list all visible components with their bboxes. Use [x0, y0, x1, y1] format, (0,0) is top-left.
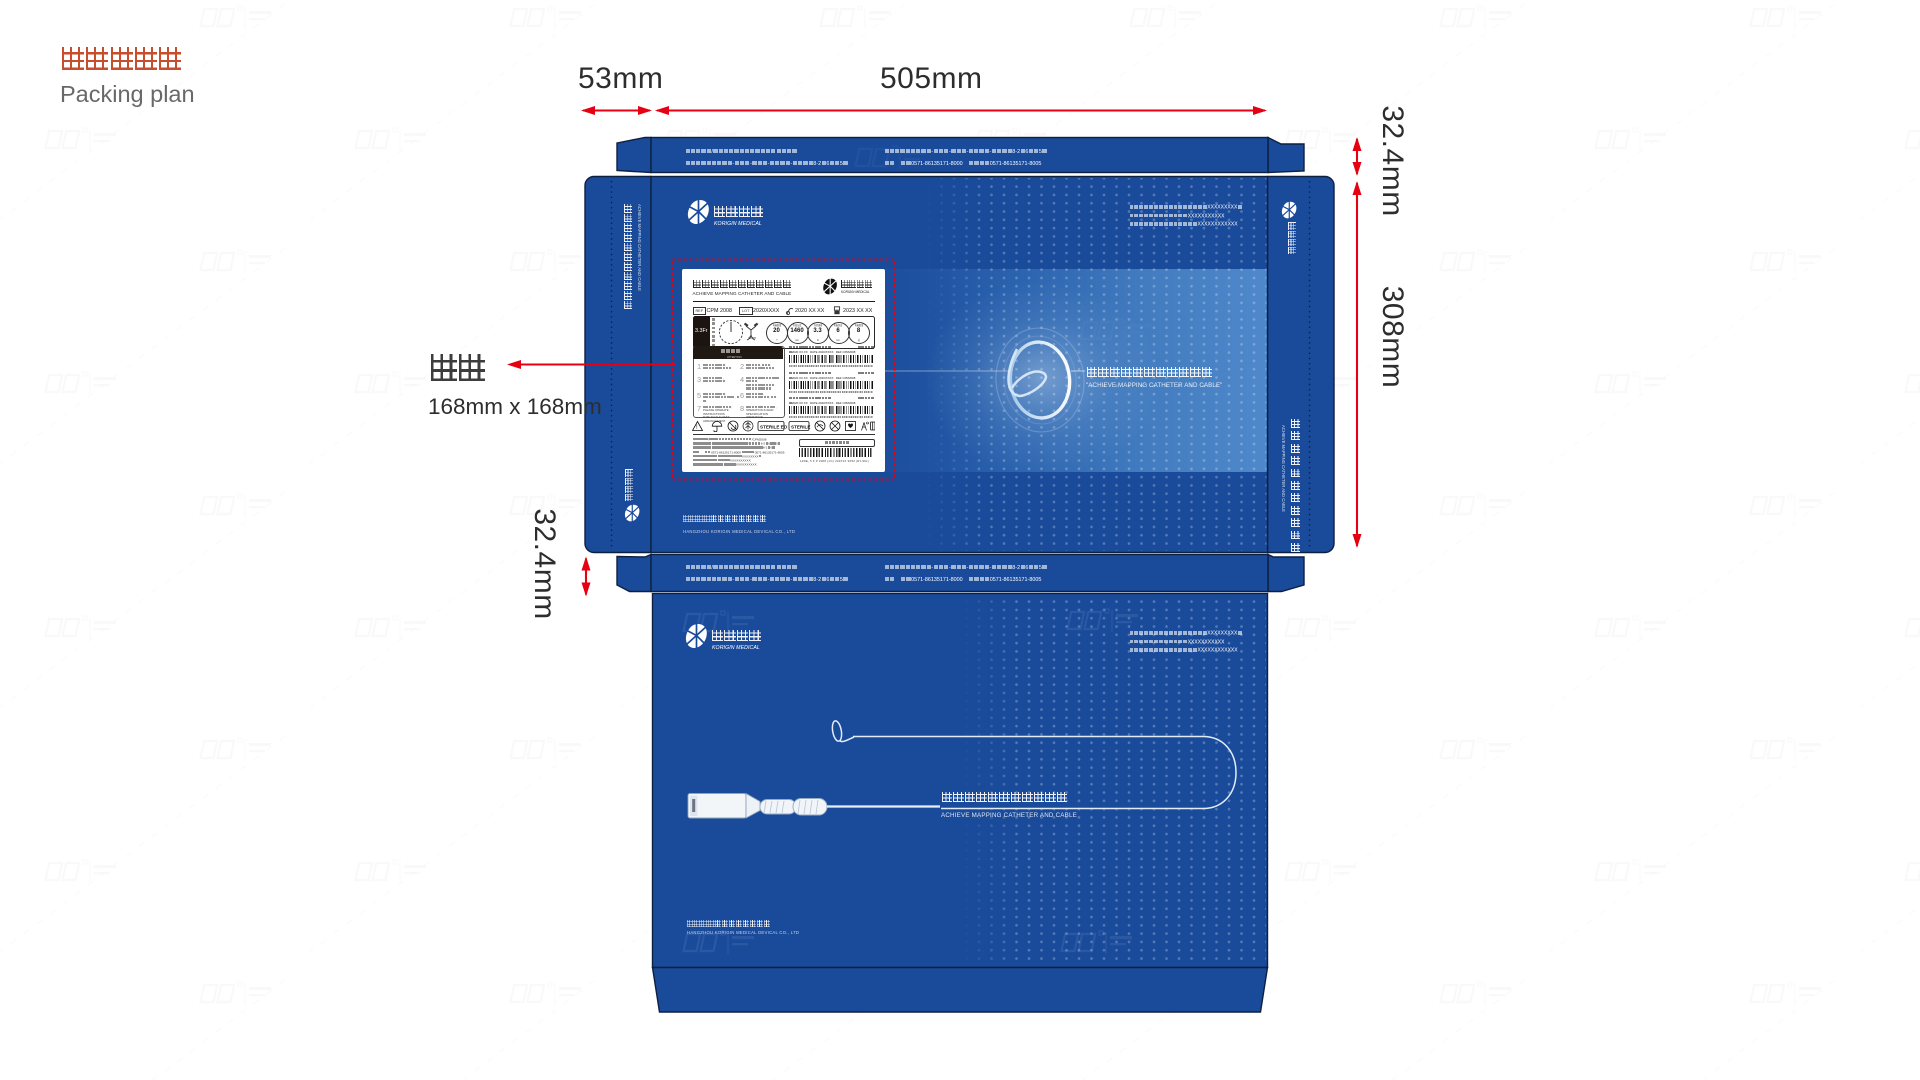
- svg-text:STERILE: STERILE: [791, 424, 810, 429]
- svg-text:STERILE EO: STERILE EO: [760, 424, 788, 429]
- svg-text:6mm: 6mm: [749, 336, 757, 340]
